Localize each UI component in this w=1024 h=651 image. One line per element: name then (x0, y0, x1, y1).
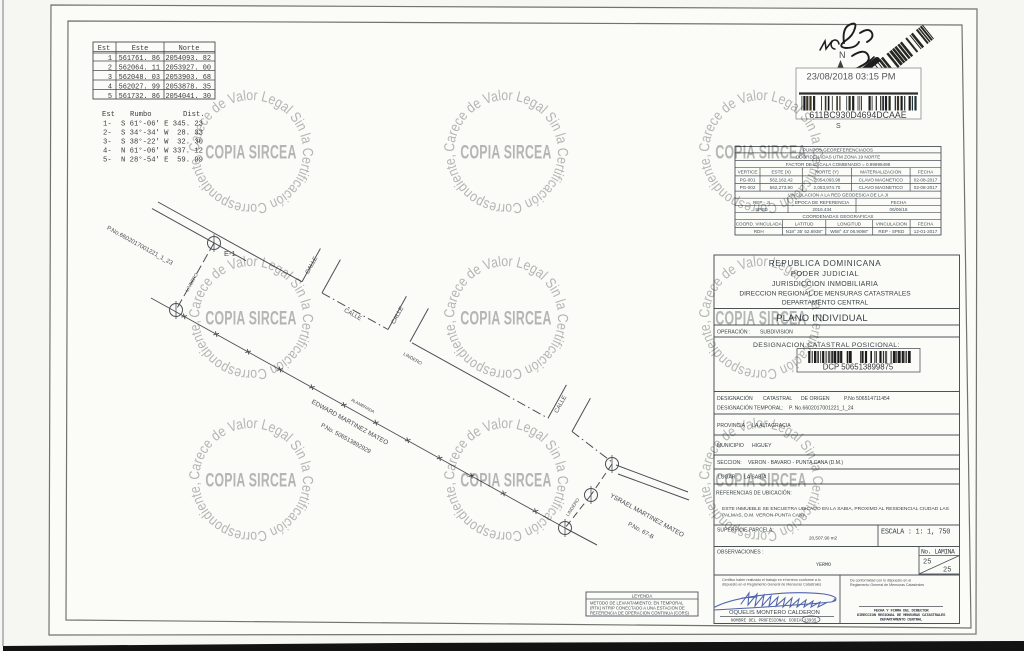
svg-text:ESTE INMUEBLE SE ENCUETRA UBIC: ESTE INMUEBLE SE ENCUETRA UBICADO EN LA … (722, 506, 950, 512)
svg-text:Est: Est (98, 45, 110, 53)
svg-text:2016.434: 2016.434 (812, 207, 832, 212)
svg-text:N 61°-06' W: N 61°-06' W (121, 147, 169, 156)
svg-text:S 38°-22' W: S 38°-22' W (121, 138, 169, 147)
svg-text:Rumbo: Rumbo (130, 111, 152, 119)
svg-text:S 34°-34' W: S 34°-34' W (121, 129, 169, 138)
svg-text:REFERENCIA DE OPERACION CONTIN: REFERENCIA DE OPERACION CONTINUA (CORS) (590, 611, 689, 616)
svg-text:Certifico haber realizado el t: Certifico haber realizado el trabajo en … (722, 578, 821, 582)
svg-text:562027. 99: 562027. 99 (119, 84, 160, 92)
svg-text:COORDENADAS GEOGRAFICAS: COORDENADAS GEOGRAFICAS (803, 214, 874, 219)
svg-text:2054093. 82: 2054093. 82 (166, 55, 212, 63)
svg-text:4-: 4- (103, 148, 112, 156)
svg-text:OQUELIS MONTERO CALDERON: OQUELIS MONTERO CALDERON (729, 610, 820, 616)
svg-text:HIGUEY: HIGUEY (752, 443, 772, 449)
svg-text:P.No 506514711454: P.No 506514711454 (844, 396, 890, 402)
svg-text:2,053,974.70: 2,053,974.70 (814, 185, 841, 190)
svg-text:2053927. 00: 2053927. 00 (166, 65, 212, 73)
svg-text:SUBDIVISION: SUBDIVISION (760, 330, 793, 336)
svg-text:562,273.90: 562,273.90 (770, 185, 793, 190)
svg-text:REP - SPED: REP - SPED (878, 229, 905, 234)
svg-text:VINCULACION: VINCULACION (876, 221, 907, 226)
svg-text:1-: 1- (103, 121, 112, 129)
svg-text:ESTE (X): ESTE (X) (771, 170, 791, 175)
svg-text:ESCALA : 1: 1, 750: ESCALA : 1: 1, 750 (881, 529, 950, 537)
svg-text:561761. 86: 561761. 86 (119, 55, 160, 63)
svg-text:3: 3 (108, 74, 112, 82)
svg-text:S 61°-06' E: S 61°-06' E (121, 120, 168, 129)
svg-text:De conformidad con lo dispuest: De conformidad con lo dispuesto en el (850, 579, 911, 583)
svg-text:CATASTRAL: CATASTRAL (763, 396, 792, 402)
svg-text:562048. 03: 562048. 03 (119, 74, 160, 82)
svg-text:DE ORIGEN: DE ORIGEN (801, 396, 830, 402)
svg-text:611BC930D4694DCAAE: 611BC930D4694DCAAE (809, 110, 906, 120)
svg-text:FECHA: FECHA (891, 200, 908, 205)
svg-text:Este: Este (132, 45, 149, 53)
svg-text:OPERACIÓN :: OPERACIÓN : (717, 329, 750, 336)
svg-text:02-08-2017: 02-08-2017 (914, 185, 938, 190)
svg-text:23/08/2018 03:15 PM: 23/08/2018 03:15 PM (807, 72, 896, 82)
svg-text:N: N (839, 50, 846, 60)
svg-text:2-: 2- (103, 130, 112, 138)
svg-text:25: 25 (923, 559, 931, 567)
svg-text:RDH: RDH (754, 229, 764, 234)
svg-text:N18° 35' 52.6938": N18° 35' 52.6938" (786, 229, 823, 234)
svg-text:MATERIALIZACION: MATERIALIZACION (860, 170, 901, 175)
svg-text:YERMO: YERMO (816, 562, 831, 568)
svg-text:CLAVO MAGNETICO: CLAVO MAGNETICO (859, 185, 904, 190)
svg-text:02-08-2017: 02-08-2017 (914, 178, 938, 183)
svg-text:Norte: Norte (179, 45, 200, 53)
svg-text:FECHA: FECHA (918, 221, 935, 226)
svg-text:LONGITUD: LONGITUD (837, 221, 861, 226)
svg-text:DESIGNACIÓN: DESIGNACIÓN (717, 395, 753, 402)
svg-text:DCP 506513899875: DCP 506513899875 (823, 363, 894, 372)
svg-text:562064. 11: 562064. 11 (119, 65, 160, 73)
svg-text:20,507.90 m2: 20,507.90 m2 (809, 536, 838, 541)
svg-text:FECHA: FECHA (918, 170, 935, 175)
svg-text:VERON - BAVARO - PUNTA CANA (D: VERON - BAVARO - PUNTA CANA (D.M.) (748, 460, 843, 466)
svg-text:5-: 5- (103, 157, 112, 165)
svg-text:06/06/18: 06/06/18 (890, 207, 908, 212)
svg-text:E-1: E-1 (224, 249, 236, 258)
svg-text:No. LAMINA: No. LAMINA (921, 549, 955, 556)
svg-text:3-: 3- (103, 139, 112, 147)
svg-text:DESIGNACION CATASTRAL POSICION: DESIGNACION CATASTRAL POSICIONAL: (753, 342, 900, 349)
svg-text:5: 5 (108, 93, 112, 101)
svg-text:Est: Est (102, 111, 115, 119)
svg-text:2053903. 68: 2053903. 68 (166, 74, 212, 82)
svg-text:DEPARTAMENTO CENTRAL: DEPARTAMENTO CENTRAL (880, 619, 923, 623)
svg-text:EPOCA DE REFERENCIA: EPOCA DE REFERENCIA (795, 200, 850, 205)
svg-text:1: 1 (108, 55, 112, 63)
svg-text:COORD. VINCULADA: COORD. VINCULADA (736, 221, 783, 226)
svg-text:2054041. 30: 2054041. 30 (166, 93, 212, 101)
svg-text:dispuesto en el Reglamento Gen: dispuesto en el Reglamento General de Me… (722, 583, 821, 587)
svg-text:PG-001: PG-001 (740, 178, 756, 183)
svg-text:562,162.42: 562,162.42 (770, 178, 793, 183)
svg-text:VERTICE: VERTICE (738, 170, 758, 175)
svg-text:JURISDICCION INMOBILIARIA: JURISDICCION INMOBILIARIA (772, 281, 878, 288)
svg-text:OBSERVACIONES :: OBSERVACIONES : (717, 550, 764, 556)
svg-text:DESIGNACIÓN TEMPORAL:: DESIGNACIÓN TEMPORAL: (717, 405, 783, 412)
svg-text:12-01-2017: 12-01-2017 (914, 229, 938, 234)
svg-text:COORDENADAS UTM ZONA 19 NORTE: COORDENADAS UTM ZONA 19 NORTE (796, 155, 881, 160)
svg-text:DIRECCION REGIONAL DE MENSURAS: DIRECCION REGIONAL DE MENSURAS CATASTRAL… (857, 614, 946, 618)
svg-text:P. No.6602017001221_1_24: P. No.6602017001221_1_24 (789, 406, 854, 412)
svg-text:25: 25 (943, 567, 951, 575)
svg-text:W68° 43' 06.9098": W68° 43' 06.9098" (830, 229, 868, 234)
svg-text:DEPARTAMENTO CENTRAL: DEPARTAMENTO CENTRAL (782, 300, 869, 307)
svg-text:DIRECCION REGIONAL DE MENSURAS: DIRECCION REGIONAL DE MENSURAS CATASTRAL… (739, 291, 911, 298)
svg-text:2053878. 35: 2053878. 35 (166, 84, 212, 92)
svg-text:Reglamento General de Mensuras: Reglamento General de Mensuras Catastral… (850, 583, 924, 587)
svg-text:PG-002: PG-002 (740, 185, 756, 190)
svg-text:LATITUD: LATITUD (795, 221, 814, 226)
svg-text:N 28°-54' E: N 28°-54' E (121, 156, 168, 165)
svg-text:2: 2 (108, 65, 112, 73)
svg-text:LEYENDA: LEYENDA (632, 594, 653, 599)
svg-text:CLAVO MAGNETICO: CLAVO MAGNETICO (859, 178, 904, 183)
svg-text:FECHA Y FIRMA DEL DIRECTOR: FECHA Y FIRMA DEL DIRECTOR (874, 610, 930, 614)
svg-text:4: 4 (108, 84, 112, 92)
svg-text:561732. 86: 561732. 86 (119, 93, 160, 101)
svg-text:S: S (836, 123, 841, 130)
svg-text:SECCION:: SECCION: (717, 460, 742, 466)
